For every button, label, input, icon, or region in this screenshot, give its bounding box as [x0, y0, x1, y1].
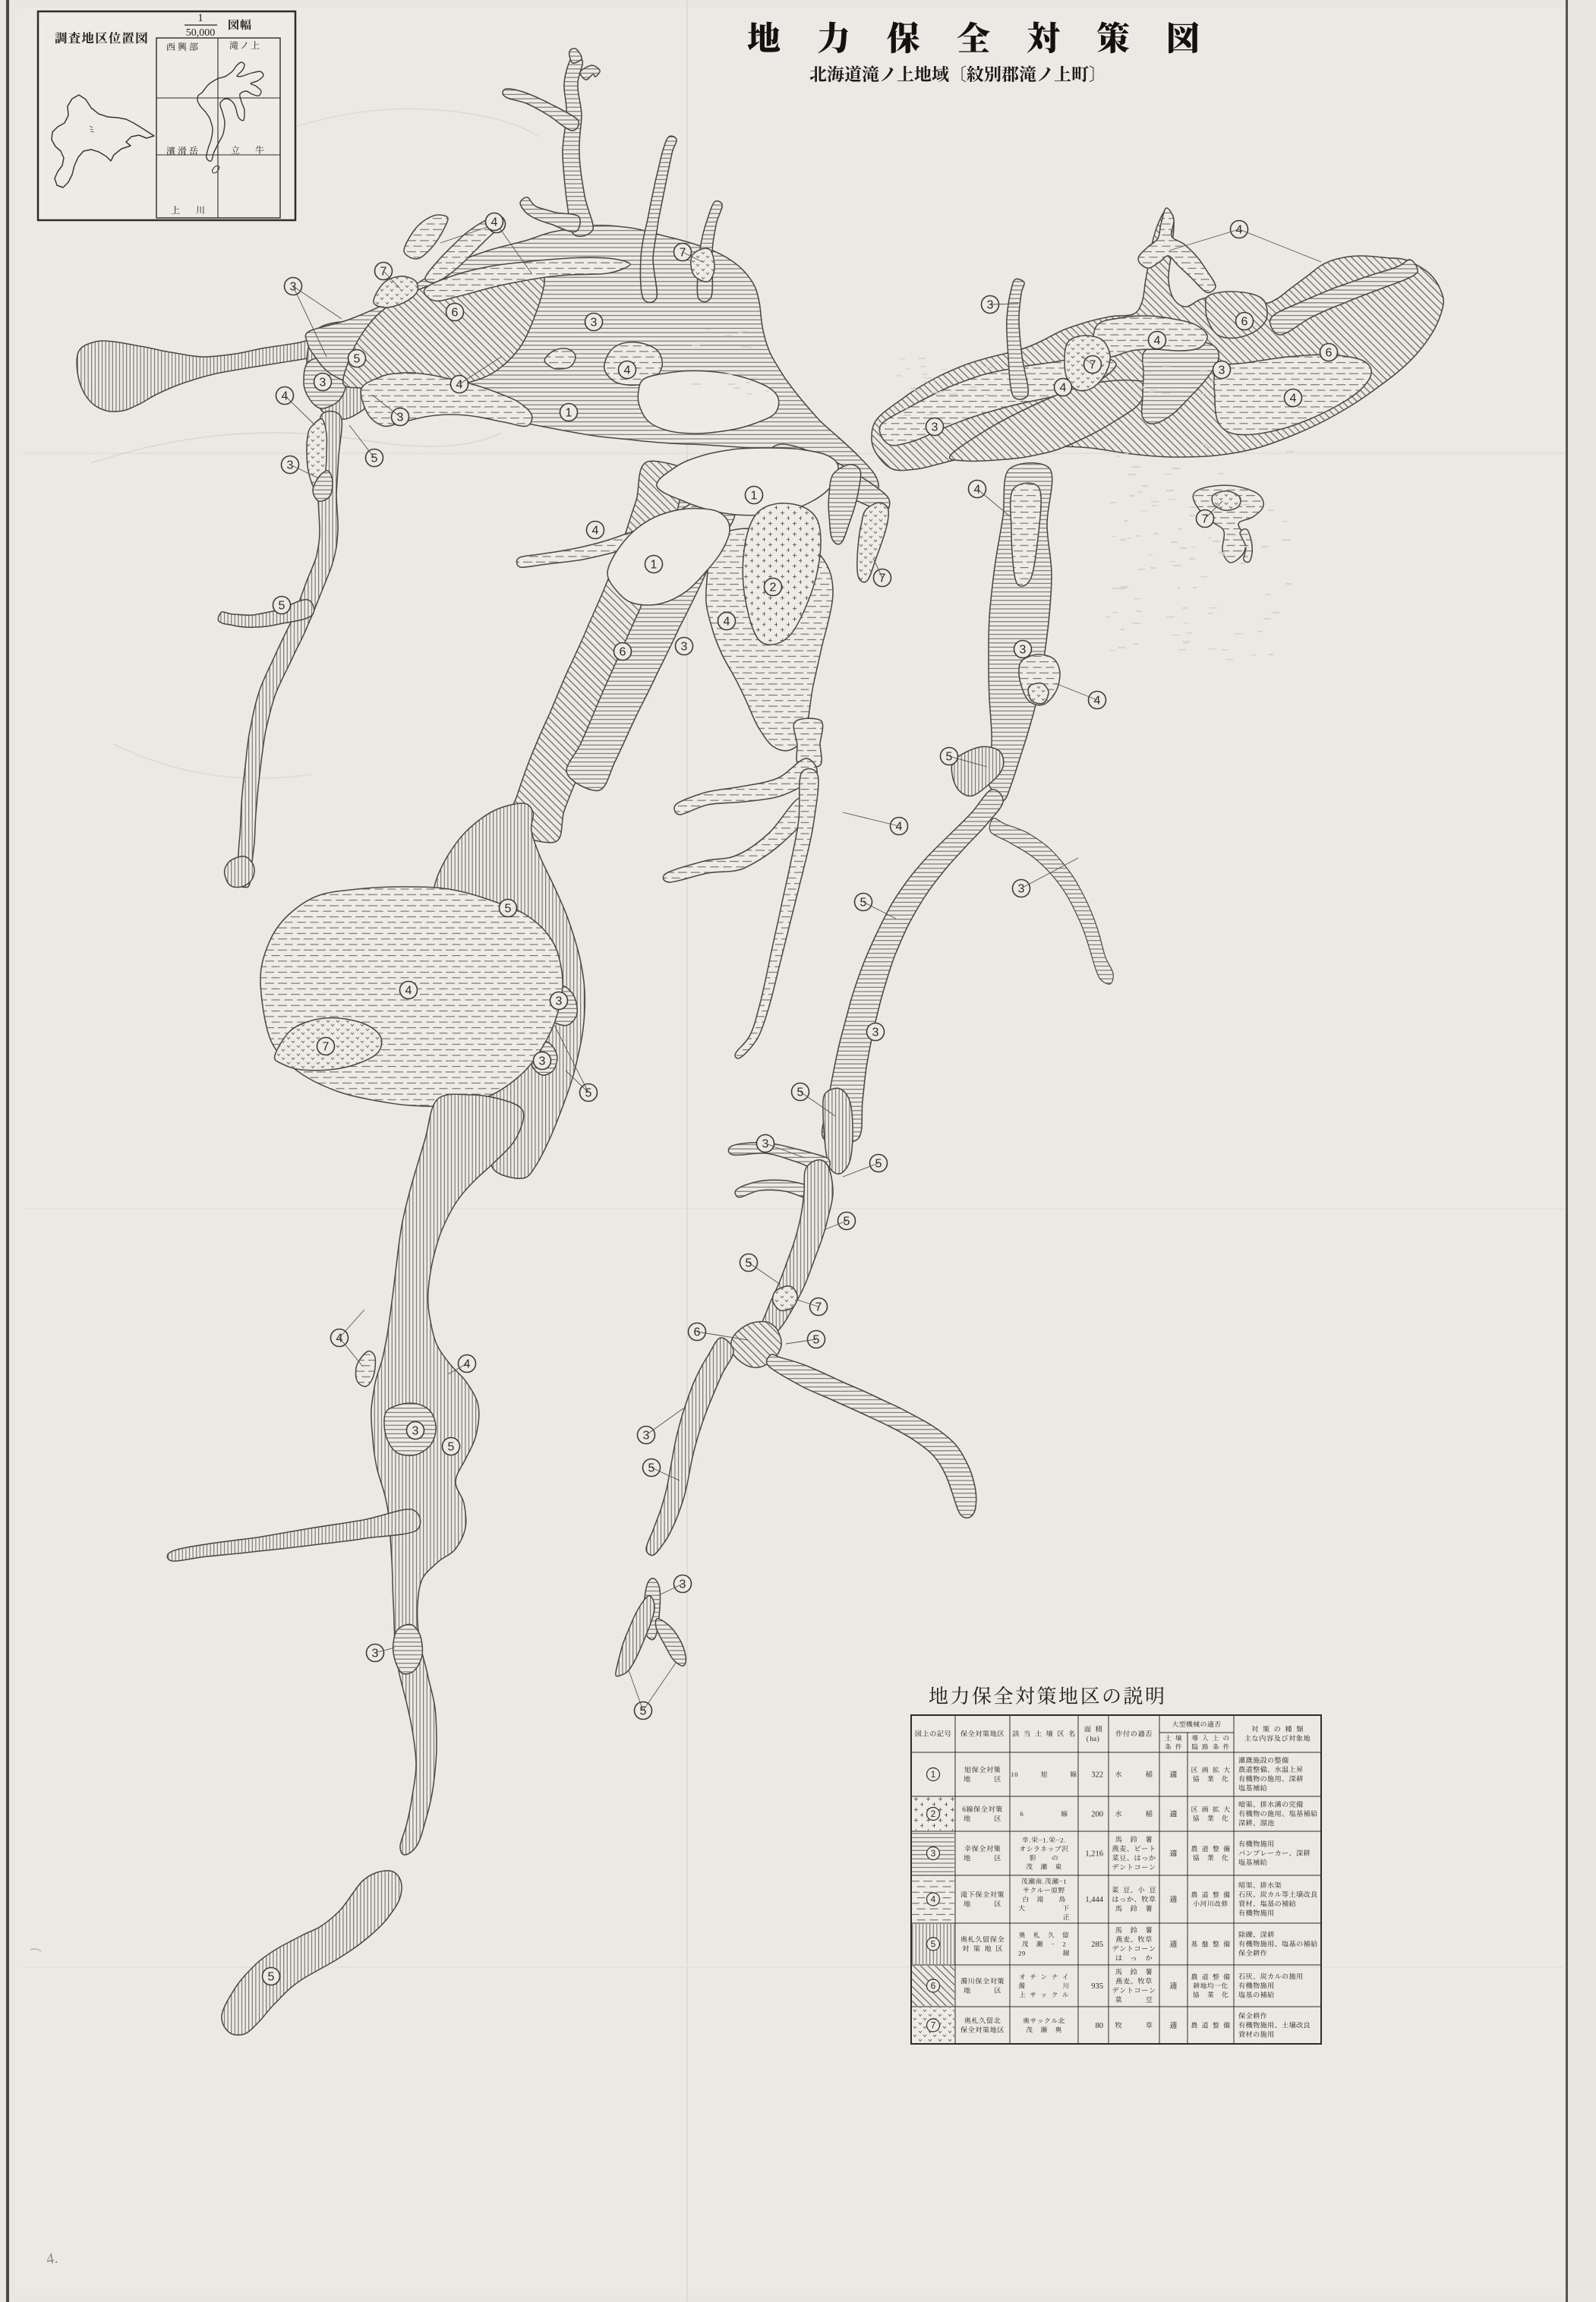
svg-text:0: 0: [1014, 1771, 1018, 1778]
svg-text:3: 3: [987, 299, 994, 312]
svg-text:1,444: 1,444: [1085, 1896, 1103, 1904]
svg-text:3: 3: [931, 1848, 936, 1859]
svg-text:4: 4: [624, 364, 631, 377]
svg-text:1: 1: [197, 12, 203, 24]
svg-text:3: 3: [932, 421, 938, 434]
svg-text:4: 4: [405, 985, 412, 998]
svg-text:4: 4: [282, 390, 289, 403]
svg-text:2: 2: [1060, 1836, 1063, 1843]
svg-text:2: 2: [770, 582, 777, 594]
svg-text:5: 5: [797, 1086, 804, 1099]
svg-text:.: .: [1029, 1836, 1030, 1843]
svg-text:322: 322: [1091, 1771, 1103, 1780]
svg-text:3: 3: [1219, 364, 1225, 377]
svg-text:): ): [1097, 1735, 1099, 1742]
svg-text:3: 3: [1020, 644, 1027, 657]
svg-text:4: 4: [464, 1358, 471, 1371]
svg-text:3: 3: [872, 1026, 879, 1039]
svg-text:6: 6: [452, 307, 459, 320]
svg-text:1: 1: [651, 559, 658, 572]
svg-text:5: 5: [813, 1334, 820, 1347]
svg-text:3: 3: [412, 1425, 419, 1438]
svg-text:.: .: [1064, 1836, 1065, 1843]
svg-text:1: 1: [1042, 1836, 1046, 1843]
svg-text:4: 4: [931, 1894, 936, 1905]
svg-text:2: 2: [931, 1808, 936, 1819]
svg-text:4: 4: [1290, 393, 1297, 405]
svg-text:6: 6: [962, 1805, 966, 1813]
svg-text:1: 1: [1063, 1878, 1066, 1885]
svg-text:6: 6: [1241, 316, 1248, 329]
svg-text:3: 3: [287, 459, 294, 472]
svg-text:4: 4: [336, 1332, 343, 1345]
svg-text:1,216: 1,216: [1085, 1850, 1103, 1859]
svg-text:6: 6: [694, 1326, 701, 1339]
svg-text:1: 1: [1011, 1771, 1014, 1778]
svg-text:4: 4: [1060, 382, 1067, 395]
svg-text:.: .: [1046, 1836, 1048, 1843]
svg-text:6: 6: [1326, 347, 1333, 360]
svg-text:80: 80: [1096, 2022, 1104, 2030]
svg-text:3: 3: [320, 377, 326, 389]
svg-text:4.: 4.: [46, 2250, 59, 2268]
svg-text:7: 7: [1202, 513, 1209, 526]
svg-text:(: (: [1087, 1735, 1089, 1742]
svg-text:4: 4: [592, 525, 599, 538]
svg-text:2: 2: [1062, 1941, 1065, 1948]
svg-text:6: 6: [620, 646, 626, 659]
svg-text:5: 5: [268, 1971, 275, 1984]
svg-text:200: 200: [1091, 1811, 1103, 1819]
svg-text:7: 7: [380, 266, 387, 279]
svg-text:5: 5: [746, 1257, 752, 1270]
svg-text:5: 5: [371, 453, 378, 465]
svg-text:5: 5: [931, 1939, 936, 1950]
svg-text:5: 5: [860, 897, 867, 910]
svg-text:4: 4: [491, 216, 498, 229]
svg-text:3: 3: [556, 995, 563, 1008]
svg-text:7: 7: [680, 247, 686, 260]
svg-text:9: 9: [1022, 1949, 1026, 1957]
svg-text:285: 285: [1091, 1941, 1103, 1949]
svg-text:3: 3: [591, 317, 598, 330]
svg-text:7: 7: [815, 1301, 822, 1314]
svg-text:3: 3: [397, 412, 404, 424]
svg-text:3: 3: [539, 1055, 546, 1068]
svg-text:3: 3: [681, 641, 688, 654]
svg-text:6: 6: [931, 1981, 936, 1991]
svg-text:3: 3: [643, 1430, 650, 1443]
svg-text:935: 935: [1091, 1982, 1103, 1991]
svg-text:1: 1: [931, 1769, 936, 1780]
svg-text:7: 7: [323, 1041, 330, 1054]
svg-text:4: 4: [1154, 335, 1161, 348]
svg-text:5: 5: [279, 600, 285, 613]
svg-text:.: .: [1042, 1878, 1044, 1885]
svg-text:4: 4: [896, 821, 903, 834]
svg-text:5: 5: [354, 353, 361, 366]
svg-text:1: 1: [751, 490, 758, 503]
svg-text:7: 7: [1090, 359, 1096, 372]
svg-text:6: 6: [1020, 1810, 1024, 1818]
svg-text:5: 5: [505, 903, 512, 916]
svg-text:5: 5: [585, 1087, 592, 1100]
svg-text:7: 7: [879, 572, 886, 585]
svg-text:2: 2: [1018, 1949, 1021, 1957]
svg-text:4: 4: [456, 379, 463, 392]
svg-text:4: 4: [974, 484, 981, 497]
svg-text:3: 3: [372, 1648, 379, 1660]
svg-text:50,000: 50,000: [186, 27, 216, 39]
svg-text:1: 1: [566, 407, 572, 420]
svg-text:5: 5: [448, 1441, 455, 1454]
svg-text:3: 3: [1018, 883, 1025, 896]
svg-text:7: 7: [931, 2020, 936, 2031]
svg-text:a: a: [1093, 1735, 1096, 1742]
svg-text:4: 4: [724, 616, 730, 629]
svg-text:4: 4: [1094, 695, 1101, 708]
